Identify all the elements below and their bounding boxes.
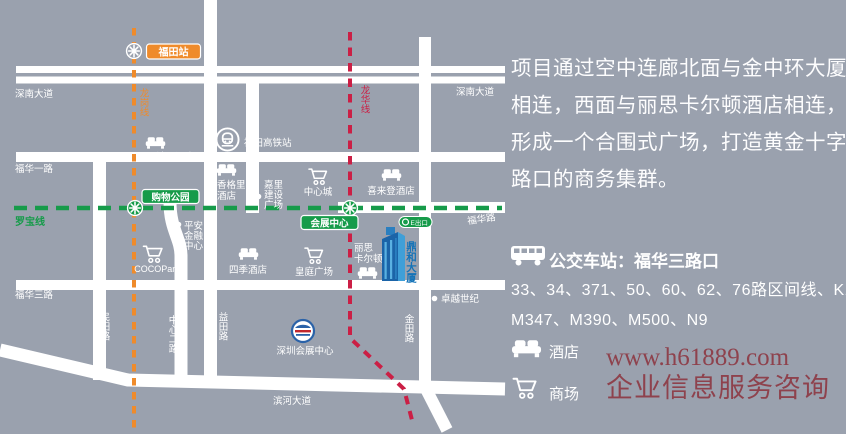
road-jintian: [419, 37, 431, 387]
map-infographic: 罗宝线 龙岗线 龙华线 深南大道 深南大道 福华一路 福华三路 福华路 滨河大道…: [0, 0, 846, 434]
station-badge-shopping-park: 购物公园: [142, 190, 199, 204]
poi-label-ritz-2: 卡尔顿: [354, 253, 383, 265]
road-label-fuhua-san: 福华三路: [15, 289, 54, 301]
road-label-shennan-right: 深南大道: [456, 86, 495, 98]
road-shennan-upper: [16, 66, 505, 73]
road-label-binhe: 滨河大道: [273, 395, 312, 407]
poi-label-pingan-3: 中心: [184, 240, 204, 252]
metro-exit-badge: E出口: [399, 217, 432, 228]
road-fuhua-san: [16, 280, 505, 290]
road-shennan-lower: [16, 77, 505, 84]
building-label-dinghe: 鼎和大厦: [405, 240, 417, 284]
road-yitian: [204, 0, 217, 388]
marker-dot-pingan: [176, 222, 182, 228]
bus-icon: [511, 245, 545, 272]
road-label-zhongxin-er: 中心二路: [167, 314, 179, 354]
mall-legend-label: 商场: [549, 383, 579, 404]
marker-dot-zhuoyue: [432, 296, 438, 302]
poi-label-zhuoyue: 卓越世纪: [441, 293, 480, 305]
poi-label-four-seasons: 四季酒店: [229, 264, 267, 276]
bus-routes-line2: M347、M390、M500、N9: [511, 306, 708, 330]
marker-dot-kerry: [256, 194, 262, 200]
road-label-yitian: 益田路: [217, 311, 229, 341]
station-label-convention-center: 会展中心: [310, 218, 349, 230]
road-label-shennan-left: 深南大道: [15, 88, 54, 100]
road-label-fuhua-yi: 福华一路: [15, 163, 54, 175]
watermark: www.h61889.com 企业信息服务咨询: [606, 344, 846, 404]
poi-label-sheraton: 喜来登酒店: [367, 185, 415, 197]
convention-center-logo: [292, 320, 314, 342]
hotel-legend-label: 酒店: [549, 341, 579, 362]
poi-label-cocopark: COCOPark: [134, 264, 180, 274]
road-fuhua-yi: [16, 152, 505, 162]
poi-label-ritz-1: 丽思: [354, 243, 374, 254]
poi-label-huangting: 皇庭广场: [295, 266, 333, 278]
station-badge-futian: 福田站: [147, 44, 201, 59]
watermark-caption: 企业信息服务咨询: [606, 373, 846, 404]
poi-label-shangri-la-2: 酒店: [217, 190, 236, 202]
metro-logo-icon-futian: [127, 44, 142, 59]
poi-label-futian-hsr: 福田高铁站: [244, 137, 292, 149]
watermark-url: www.h61889.com: [606, 344, 846, 373]
hotel-legend-icon: [511, 338, 542, 363]
metro-line-label-longgang: 龙岗线: [138, 87, 150, 116]
project-description: 项目通过空中连廊北面与金中环大厦相连，西面与丽思卡尔顿酒店相连，形成一个合围式广…: [511, 50, 846, 198]
metro-exit-label: E出口: [411, 218, 428, 227]
road-mintian: [93, 152, 106, 380]
road-label-mintian: 民田路: [99, 312, 111, 341]
station-label-futian: 福田站: [158, 46, 189, 59]
poi-label-shangri-la-1: 香格里拉: [217, 179, 256, 191]
metro-logo-icon-convention-center: [343, 201, 358, 216]
poi-label-central-city: 中心城: [304, 186, 333, 198]
mall-legend-icon: [512, 376, 539, 405]
station-badge-convention-center: 会展中心: [301, 216, 358, 230]
poi-label-szcec: 深圳会展中心: [276, 345, 334, 357]
poi-label-kerry-3: 广场: [264, 199, 283, 211]
metro-line-label-longhua: 龙华线: [359, 84, 371, 113]
metro-logo-icon-shopping-park: [128, 201, 143, 216]
bus-routes-line1: 33、34、371、50、60、62、76路区间线、K113、: [511, 276, 846, 300]
poi-label-marco-polo: 马可波罗酒店: [137, 151, 194, 163]
metro-line-label-luobao: 罗宝线: [15, 215, 45, 228]
bus-station-title: 公交车站：福华三路口: [549, 247, 719, 272]
station-label-shopping-park: 购物公园: [151, 192, 189, 204]
road-label-jintian: 金田路: [403, 313, 415, 343]
